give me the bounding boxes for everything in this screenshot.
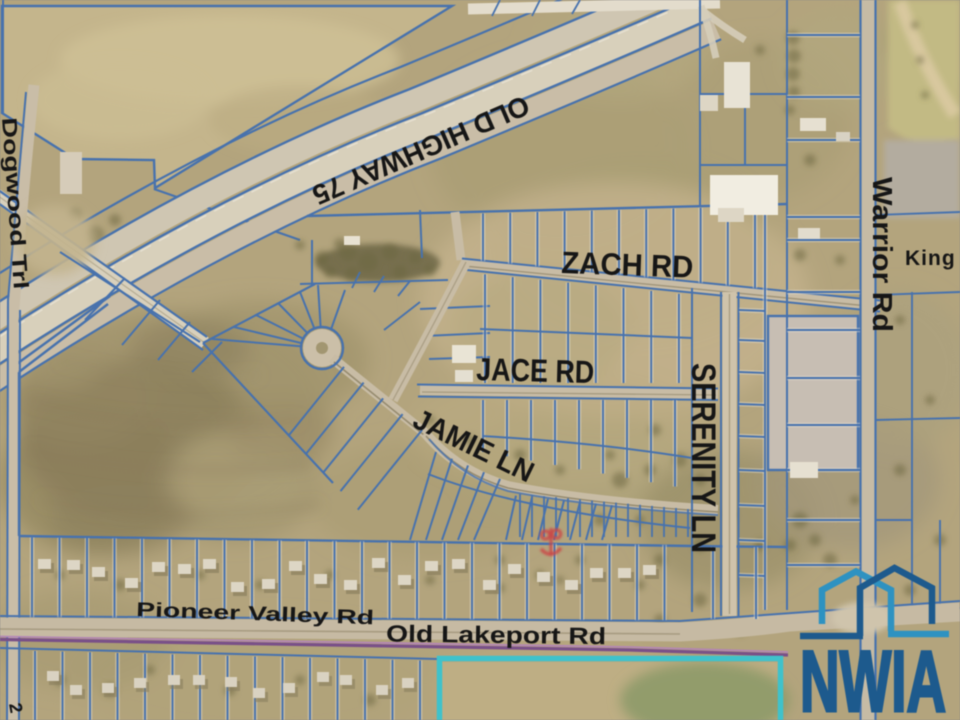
svg-text:King: King xyxy=(905,247,956,270)
svg-text:JACE RD: JACE RD xyxy=(476,351,595,390)
svg-text:NWIA: NWIA xyxy=(800,634,946,720)
svg-text:Old Lakeport Rd: Old Lakeport Rd xyxy=(386,621,606,650)
svg-text:Warrior Rd: Warrior Rd xyxy=(867,177,898,332)
svg-text:ZACH RD: ZACH RD xyxy=(561,245,694,285)
svg-text:SERENITY LN: SERENITY LN xyxy=(684,363,722,553)
